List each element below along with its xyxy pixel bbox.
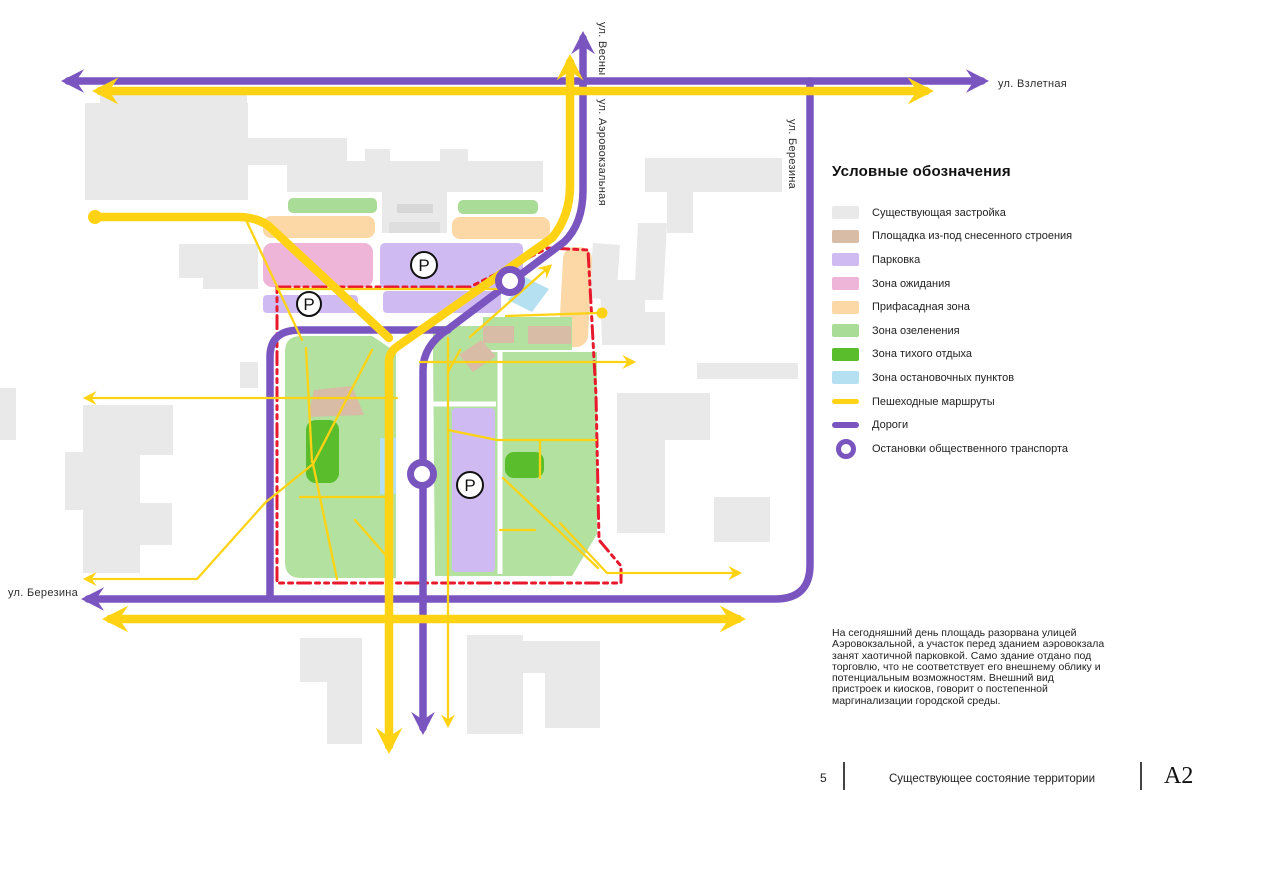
legend-swatch-greenery	[832, 324, 859, 337]
sheet-format: А2	[1164, 763, 1193, 790]
footer-divider	[843, 762, 845, 790]
demolished-site	[483, 326, 514, 343]
legend-swatch-demolished	[832, 230, 859, 243]
legend-item-label: Существующая застройка	[872, 207, 1006, 219]
legend-item-label: Зона остановочных пунктов	[872, 372, 1014, 384]
legend-item-greenery: Зона озеленения	[832, 319, 1252, 343]
legend-item-roads: Дороги	[832, 413, 1252, 437]
legend-item-transit-stops: Остановки общественного транспорта	[832, 437, 1252, 461]
transit-stop	[411, 463, 434, 486]
legend-item-waiting: Зона ожидания	[832, 272, 1252, 296]
legend-rows: Существующая застройка Площадка из-под с…	[832, 201, 1252, 461]
legend-item-label: Зона тихого отдыха	[872, 348, 972, 360]
legend-item-label: Площадка из-под снесенного строения	[872, 230, 1072, 242]
legend-item-quiet: Зона тихого отдыха	[832, 343, 1252, 367]
quiet-rest-zone	[505, 452, 544, 478]
legend-item-existing: Существующая застройка	[832, 201, 1252, 225]
legend-swatch-parking	[832, 253, 859, 266]
legend-item-demolished: Площадка из-под снесенного строения	[832, 225, 1252, 249]
demolished-site	[528, 326, 571, 344]
legend-item-parking: Парковка	[832, 248, 1252, 272]
legend-item-facade: Прифасадная зона	[832, 295, 1252, 319]
legend-swatch-quiet	[832, 348, 859, 361]
parking-marker-letter: P	[303, 295, 314, 314]
legend-item-label: Пешеходные маршруты	[872, 396, 995, 408]
street-label-berezina-left: ул. Березина	[8, 587, 79, 599]
transit-stop	[499, 270, 522, 293]
legend-swatch-pedestrian-line	[832, 399, 859, 404]
legend-item-label: Зона озеленения	[872, 325, 960, 337]
parking-marker-letter: P	[418, 256, 429, 275]
legend-item-label: Дороги	[872, 419, 908, 431]
waiting-zone	[263, 243, 373, 287]
facade-zone	[452, 217, 550, 239]
park-left	[285, 336, 396, 578]
page-number: 5	[820, 771, 827, 785]
legend-title: Условные обозначения	[832, 163, 1252, 180]
legend-swatch-road-line	[832, 422, 859, 428]
terminal-building	[287, 161, 543, 192]
greenery-zone	[458, 200, 538, 214]
street-label-aerovokzalnaya: ул. Аэровокзальная	[596, 99, 608, 206]
legend-item-label: Парковка	[872, 254, 920, 266]
legend-item-stops: Зона остановочных пунктов	[832, 366, 1252, 390]
legend-swatch-stops	[832, 371, 859, 384]
street-label-vesny: ул. Весны	[596, 22, 608, 75]
legend-swatch-facade	[832, 301, 859, 314]
site-description: На сегодняшний день площадь разорвана ул…	[832, 628, 1106, 707]
legend-swatch-existing	[832, 206, 859, 219]
existing-buildings	[0, 94, 798, 744]
parking-marker-letter: P	[464, 476, 475, 495]
sheet-title: Существующее состояние территории	[852, 773, 1132, 785]
legend-item-label: Остановки общественного транспорта	[872, 443, 1068, 455]
footer-divider	[1140, 762, 1142, 790]
legend-swatch-transit-ring	[832, 439, 859, 459]
greenery-zone	[288, 198, 377, 213]
street-label-berezina-right: ул. Березина	[786, 119, 798, 190]
legend-item-label: Зона ожидания	[872, 278, 950, 290]
legend: Условные обозначения Существующая застро…	[832, 163, 1252, 461]
street-label-vzletnaya: ул. Взлетная	[998, 78, 1067, 90]
legend-swatch-waiting	[832, 277, 859, 290]
legend-item-label: Прифасадная зона	[872, 301, 970, 313]
legend-item-pedestrian-routes: Пешеходные маршруты	[832, 390, 1252, 414]
